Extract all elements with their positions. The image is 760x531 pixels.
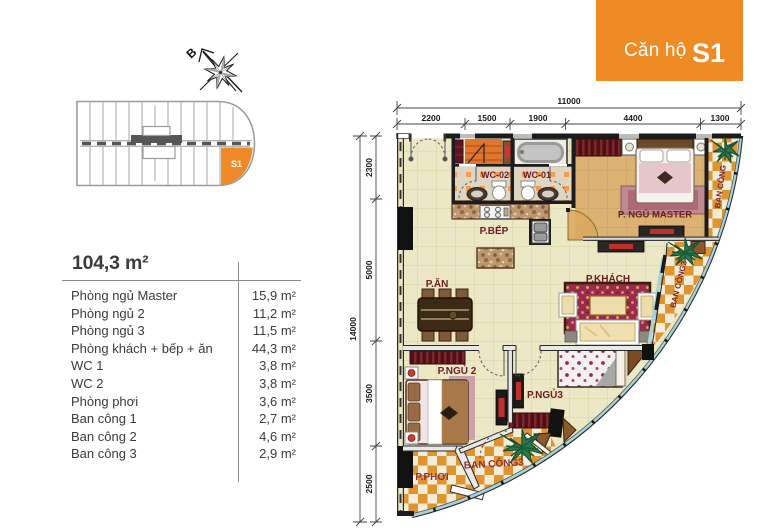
svg-text:P.BẾP: P.BẾP: [480, 224, 509, 237]
svg-text:P.ĂN: P.ĂN: [426, 277, 449, 290]
svg-text:11000: 11000: [557, 96, 580, 106]
svg-text:B: B: [183, 45, 199, 61]
svg-text:1500: 1500: [478, 113, 497, 123]
svg-text:1900: 1900: [529, 113, 548, 123]
svg-text:1300: 1300: [711, 113, 730, 123]
svg-text:3500: 3500: [364, 384, 374, 403]
svg-text:P.KHÁCH: P.KHÁCH: [586, 272, 630, 285]
svg-text:P. NGỦ MASTER: P. NGỦ MASTER: [618, 209, 692, 221]
svg-text:P.PHƠI: P.PHƠI: [415, 472, 449, 483]
svg-text:WC-01: WC-01: [523, 170, 551, 180]
svg-text:5000: 5000: [364, 260, 374, 279]
svg-text:14000: 14000: [348, 317, 358, 341]
svg-text:S1: S1: [231, 159, 242, 169]
svg-text:P.NGỦ 2: P.NGỦ 2: [438, 364, 477, 377]
svg-text:2300: 2300: [364, 158, 374, 177]
svg-text:P.NGỦ3: P.NGỦ3: [527, 388, 563, 401]
svg-text:2200: 2200: [422, 113, 441, 123]
svg-text:4400: 4400: [624, 113, 643, 123]
svg-text:2500: 2500: [364, 474, 374, 493]
svg-text:WC-02: WC-02: [481, 170, 509, 180]
